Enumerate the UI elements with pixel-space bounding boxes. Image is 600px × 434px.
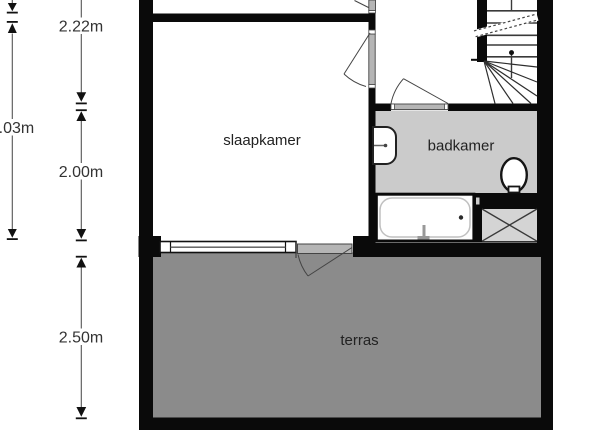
svg-text:2.50m: 2.50m	[59, 330, 103, 347]
svg-text:2.00m: 2.00m	[59, 164, 103, 181]
svg-text:4.03m: 4.03m	[0, 120, 34, 137]
svg-text:badkamer: badkamer	[428, 138, 495, 155]
svg-text:slaapkamer: slaapkamer	[223, 132, 301, 149]
svg-text:terras: terras	[340, 332, 378, 349]
svg-text:2.22m: 2.22m	[59, 19, 103, 36]
